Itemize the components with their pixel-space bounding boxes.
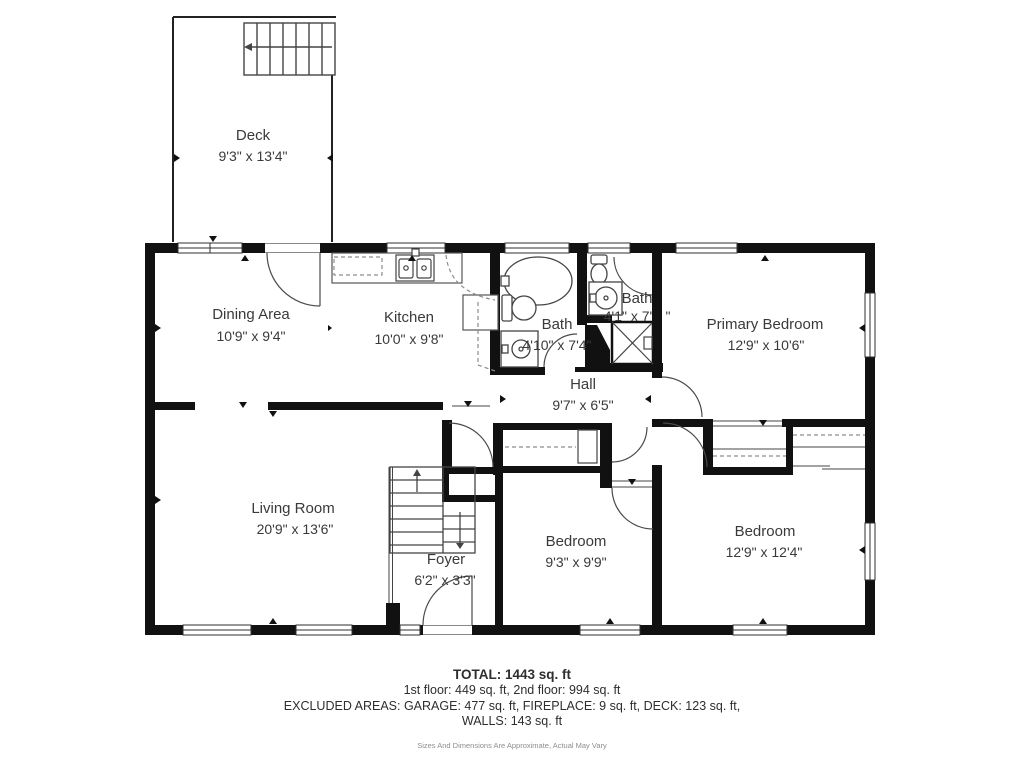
door-arc (612, 427, 647, 462)
window (676, 243, 737, 253)
wall-segment (703, 419, 713, 475)
room-label-living-room: Living Room (251, 500, 334, 517)
foyer-door-opening (423, 626, 472, 635)
room-dims-bath-small-tail: " (666, 308, 671, 324)
window (183, 625, 251, 635)
wall-segment (652, 308, 662, 326)
door-arc (663, 423, 707, 467)
wall-segment (792, 419, 865, 427)
room-label-hall: Hall (570, 376, 596, 393)
door-arc (612, 488, 653, 529)
excluded-areas-text: EXCLUDED AREAS: GARAGE: 477 sq. ft, FIRE… (0, 699, 1024, 715)
wall-segment (490, 367, 545, 375)
wall-segment (145, 243, 155, 635)
wall-segment (600, 423, 612, 488)
door-arc (449, 423, 493, 467)
room-dims-bedroom-2: 12'9" x 12'4" (726, 544, 803, 560)
room-dims-bath-small: 4'1" x 7' (604, 308, 652, 324)
wall-segment (442, 420, 452, 467)
window (580, 625, 640, 635)
room-dims-bedroom-1: 9'3" x 9'9" (545, 554, 606, 570)
window (296, 625, 352, 635)
floor-plan-svg: Deck 9'3" x 13'4" Dining Area 10'9" x 9'… (0, 0, 1024, 768)
room-label-kitchen: Kitchen (384, 309, 434, 326)
closet-door-panel (578, 430, 597, 463)
room-label-dining: Dining Area (212, 306, 290, 323)
total-area-text: TOTAL: 1443 sq. ft (0, 666, 1024, 683)
door-arc (267, 253, 320, 306)
room-label-deck: Deck (236, 127, 271, 144)
area-summary: TOTAL: 1443 sq. ft 1st floor: 449 sq. ft… (0, 666, 1024, 750)
disclaimer-text: Sizes And Dimensions Are Approximate, Ac… (0, 741, 1024, 750)
floor-areas-text: 1st floor: 449 sq. ft, 2nd floor: 994 sq… (0, 683, 1024, 699)
wall-segment (442, 495, 503, 502)
wall-segment (652, 465, 662, 625)
wall-segment (577, 253, 587, 325)
room-dims-hall: 9'7" x 6'5" (552, 397, 613, 413)
room-dims-deck: 9'3" x 13'4" (219, 148, 288, 164)
room-label-bath-small: Bath (622, 290, 653, 307)
window (865, 293, 875, 357)
deck-stairs-icon (244, 23, 335, 75)
wall-segment (782, 419, 792, 427)
room-label-foyer: Foyer (427, 551, 465, 568)
room-dims-primary-bedroom: 12'9" x 10'6" (728, 337, 805, 353)
wall-segment (495, 467, 503, 625)
room-label-bedroom-2: Bedroom (735, 523, 796, 540)
room-dims-bath-main: 4'10" x 7'4" (523, 337, 592, 353)
walls-area-text: WALLS: 143 sq. ft (0, 714, 1024, 730)
room-label-primary-bedroom: Primary Bedroom (707, 316, 824, 333)
wall-segment (155, 402, 195, 410)
floor-plan-page: Deck 9'3" x 13'4" Dining Area 10'9" x 9'… (0, 0, 1024, 768)
room-dims-kitchen: 10'0" x 9'8" (375, 331, 444, 347)
window (733, 625, 787, 635)
window (505, 243, 569, 253)
toilet-icon (502, 295, 536, 321)
wall-segment (268, 402, 443, 410)
wall-segment (493, 423, 612, 430)
room-label-bath-main: Bath (542, 316, 573, 333)
window (400, 625, 420, 635)
room-dims-living-room: 20'9" x 13'6" (257, 521, 334, 537)
wall-segment (493, 466, 605, 473)
room-dims-dining: 10'9" x 9'4" (217, 328, 286, 344)
shower-icon (612, 322, 653, 364)
window (865, 523, 875, 580)
window (588, 243, 630, 253)
room-dims-foyer: 6'2" x 3'3" (414, 572, 475, 588)
fireplace-icon (386, 603, 400, 627)
window (178, 243, 242, 253)
deck-door-opening (265, 244, 320, 253)
room-label-bedroom-1: Bedroom (546, 533, 607, 550)
toilet-icon (591, 255, 607, 284)
door-arc (662, 377, 702, 417)
wall-segment (703, 467, 793, 475)
